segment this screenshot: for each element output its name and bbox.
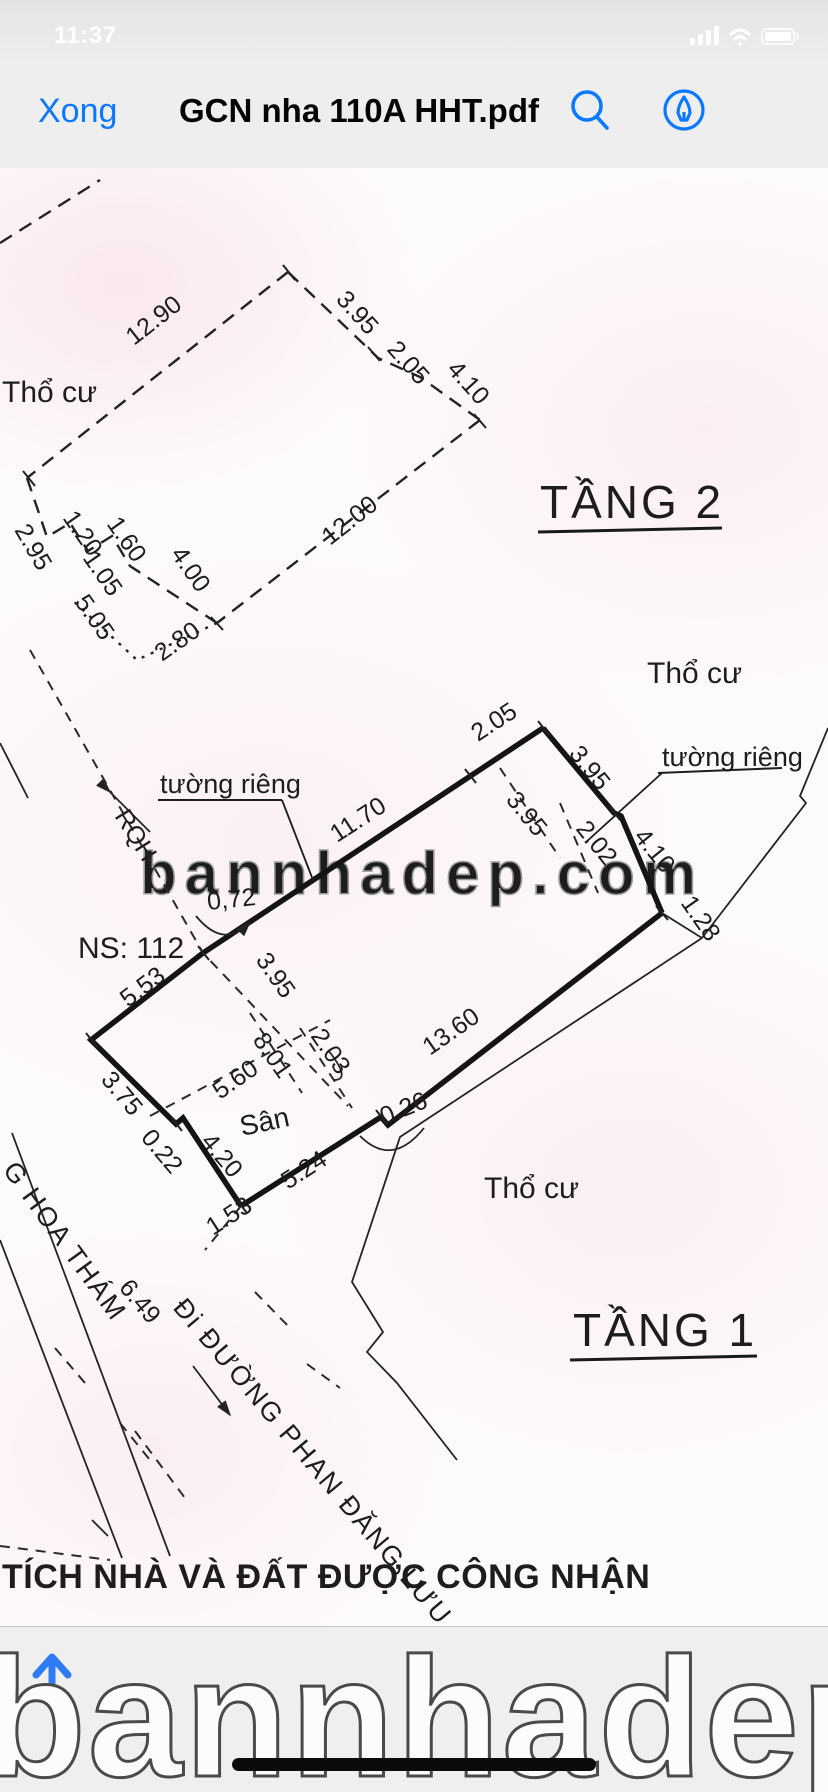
dim-label: 3.95 — [563, 740, 615, 795]
house-number: NS: 112 — [78, 932, 184, 965]
dim-label: 2.05 — [382, 335, 435, 390]
dim-label: 12.90 — [120, 290, 187, 351]
document-title: GCN nha 110A HHT.pdf — [164, 92, 554, 130]
footer-band: bannhadep.com — [0, 1626, 828, 1792]
nav-bar: Xong GCN nha 110A HHT.pdf — [0, 60, 828, 168]
markup-button[interactable] — [656, 82, 712, 138]
status-icons — [690, 24, 802, 48]
dim-label: 13.60 — [417, 1002, 484, 1061]
dim-label: 4.00 — [165, 541, 216, 597]
yard-label: Sân — [237, 1101, 292, 1142]
caption: TÍCH NHÀ VÀ ĐẤT ĐƯỢC CÔNG NHẬN — [2, 1557, 650, 1596]
search-icon — [573, 92, 607, 128]
floor1-labels: Thổ cư Thổ cư RQH NS: 112 0,72 11.70 2.0… — [78, 657, 757, 1360]
cellular-signal-icon — [690, 26, 719, 45]
dim-label: 3.75 — [95, 1066, 148, 1121]
dim-label: 0.22 — [135, 1124, 188, 1179]
area-label: Thổ cư — [2, 376, 97, 409]
street-hoa-tham: G HOA THÁM — [0, 1156, 133, 1327]
battery-icon — [762, 29, 798, 44]
screen: 11:37 Xong GCN nha 110A HHT.pdf — [0, 0, 828, 1792]
dim-label: 5.60 — [207, 1054, 263, 1105]
dim-label: 5.53 — [115, 961, 171, 1013]
dim-label: 2.03 — [305, 1023, 356, 1079]
dim-label: 3.95 — [331, 285, 384, 340]
dim-label: 3.95 — [500, 786, 552, 841]
wall-label-left: tường riêng — [160, 769, 301, 799]
home-indicator[interactable] — [232, 1758, 596, 1771]
floor1-title: TẦNG 1 — [573, 1304, 757, 1356]
area-label: Thổ cư — [647, 657, 742, 690]
pdf-page[interactable]: bannhadep.com Thổ cư 12.90 — [0, 168, 828, 1626]
dim-label: 2.05 — [466, 697, 522, 747]
wifi-icon — [731, 30, 749, 46]
done-button[interactable]: Xong — [38, 92, 117, 131]
floor2-title: TẦNG 2 — [540, 476, 724, 528]
dim-label: 4.10 — [442, 355, 495, 410]
floor2-outline — [0, 180, 480, 660]
dim-label: 4.20 — [195, 1128, 248, 1183]
floor-plan-drawing: bannhadep.com Thổ cư 12.90 — [0, 168, 828, 1626]
dim-label: 3.95 — [250, 947, 301, 1003]
dim-label: 2.95 — [9, 519, 58, 575]
dim-label: 0,72 — [206, 883, 257, 916]
area-label: Thổ cư — [484, 1172, 579, 1205]
markup-pen-icon — [665, 91, 703, 129]
search-button[interactable] — [562, 82, 618, 138]
dim-label: 0.26 — [376, 1086, 432, 1130]
status-bar: 11:37 — [0, 0, 828, 60]
dim-label: 12.00 — [316, 490, 383, 551]
clock: 11:37 — [54, 22, 117, 50]
dim-label: 2.80 — [149, 616, 205, 667]
